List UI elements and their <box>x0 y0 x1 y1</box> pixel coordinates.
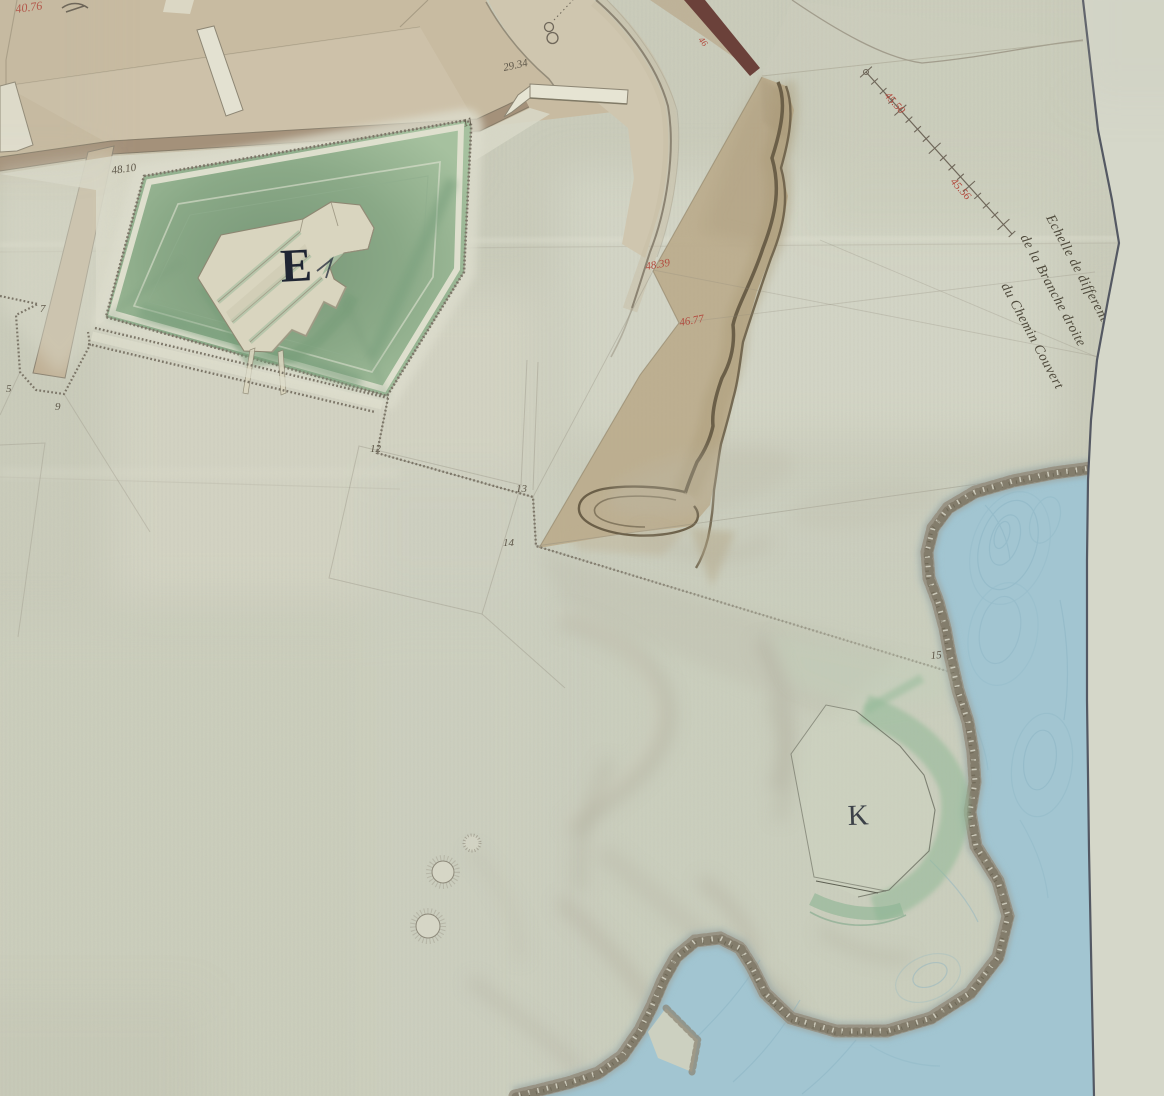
svg-text:E: E <box>279 239 313 293</box>
svg-text:14: 14 <box>503 537 515 549</box>
svg-text:13: 13 <box>516 483 528 495</box>
svg-text:7: 7 <box>40 303 46 315</box>
svg-text:15: 15 <box>930 649 943 662</box>
svg-text:12: 12 <box>370 443 382 455</box>
svg-text:K: K <box>847 799 869 832</box>
svg-text:5: 5 <box>6 383 12 395</box>
svg-text:9: 9 <box>55 401 61 413</box>
